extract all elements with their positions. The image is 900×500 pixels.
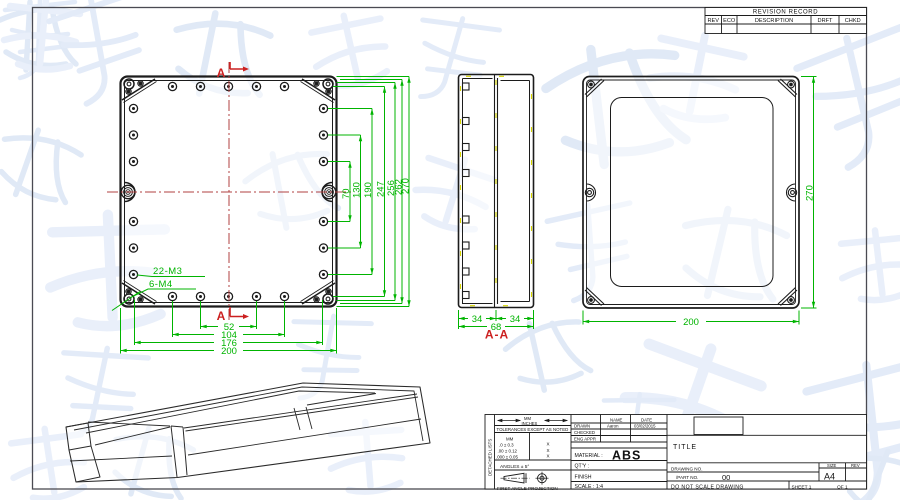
svg-text:6-M4: 6-M4 — [149, 279, 173, 290]
svg-text:/PART NO.: /PART NO. — [676, 475, 698, 480]
svg-text:ECO: ECO — [723, 18, 736, 24]
svg-text:.000 ± 0.05: .000 ± 0.05 — [496, 455, 518, 460]
svg-text:34: 34 — [510, 314, 521, 325]
svg-text:A-A: A-A — [485, 328, 509, 342]
svg-text:34: 34 — [472, 314, 483, 325]
svg-text:ENG APPR: ENG APPR — [574, 437, 596, 442]
svg-text:200: 200 — [683, 317, 699, 328]
svg-text:200: 200 — [221, 346, 237, 357]
svg-text:DO NOT SCALE DRAWING: DO NOT SCALE DRAWING — [671, 485, 744, 491]
svg-text:.0 ± 0.3: .0 ± 0.3 — [499, 443, 514, 448]
svg-text:FIRST ANGLE PROJECTION: FIRST ANGLE PROJECTION — [497, 486, 558, 491]
svg-text:CHECKED: CHECKED — [574, 430, 595, 435]
svg-text:TOLERANCES EXCEPT AS NOTED: TOLERANCES EXCEPT AS NOTED — [497, 427, 569, 432]
svg-text:OF 1: OF 1 — [837, 485, 848, 491]
svg-text:X: X — [547, 448, 550, 453]
svg-text:NAME: NAME — [610, 418, 623, 423]
svg-text:247: 247 — [376, 181, 387, 197]
svg-text:00: 00 — [722, 473, 730, 482]
svg-text:270: 270 — [401, 178, 412, 194]
svg-text:MATERIAL :: MATERIAL : — [575, 453, 603, 459]
svg-text:SCALE : 1:4: SCALE : 1:4 — [575, 484, 604, 490]
svg-text:190: 190 — [363, 182, 374, 198]
svg-text:CHKD: CHKD — [845, 18, 861, 24]
svg-text:REV: REV — [707, 18, 719, 24]
svg-text:FINISH: FINISH — [575, 475, 592, 481]
svg-text:DRAWING NO.: DRAWING NO. — [671, 467, 702, 472]
svg-text:MM: MM — [506, 437, 514, 442]
svg-text:22-M3: 22-M3 — [153, 266, 182, 277]
svg-text:.00 ± 0.12: .00 ± 0.12 — [498, 449, 518, 454]
svg-text:70: 70 — [341, 188, 352, 199]
svg-text:03/02/2015: 03/02/2015 — [634, 424, 656, 429]
svg-text:DRFT: DRFT — [818, 18, 833, 24]
svg-text:270: 270 — [805, 185, 816, 201]
svg-text:REV: REV — [851, 463, 860, 468]
svg-text:A: A — [217, 309, 226, 323]
svg-text:SHEET 1: SHEET 1 — [792, 485, 812, 491]
svg-text:QT'Y :: QT'Y : — [575, 463, 589, 469]
svg-text:TITLE: TITLE — [673, 444, 697, 451]
svg-text:REVISION RECORD: REVISION RECORD — [753, 10, 818, 16]
svg-text:ABS: ABS — [612, 449, 641, 463]
svg-text:DATE: DATE — [641, 418, 652, 423]
svg-text:INCHES: INCHES — [522, 421, 538, 426]
svg-text:DESCRIPTION: DESCRIPTION — [755, 18, 793, 24]
svg-text:Aaron: Aaron — [607, 424, 619, 429]
svg-text:130: 130 — [352, 182, 363, 198]
svg-text:A4: A4 — [824, 472, 835, 482]
svg-text:X: X — [547, 442, 550, 447]
svg-text:X: X — [547, 454, 550, 459]
svg-text:A: A — [217, 66, 226, 80]
svg-text:DRAWN: DRAWN — [574, 424, 590, 429]
svg-text:DETACHED LISTS: DETACHED LISTS — [488, 439, 493, 476]
svg-text:SIZE: SIZE — [827, 463, 837, 468]
svg-text:ANGLES ± 5°: ANGLES ± 5° — [500, 464, 529, 470]
